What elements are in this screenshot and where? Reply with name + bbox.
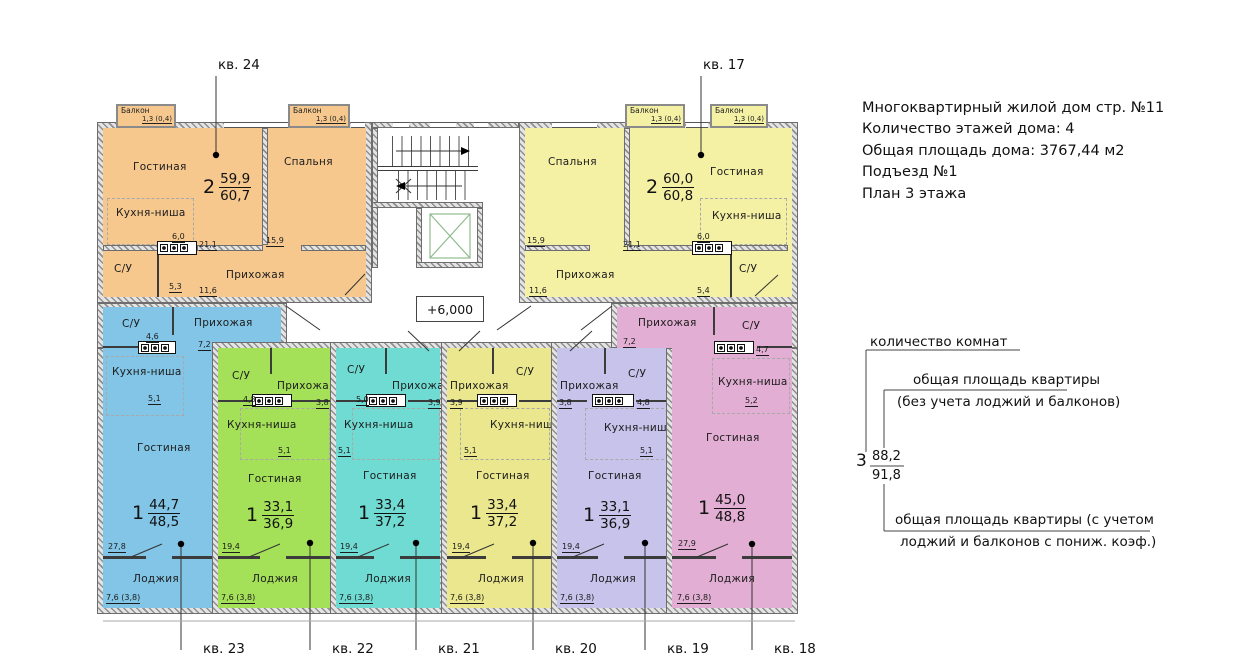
wall [731,245,788,251]
area-number-living: 27,9 [678,539,696,550]
area-number-living: 19,4 [222,542,240,553]
plumbing-fixtures [477,394,517,407]
room-label-kitchen: Кухня-ниша [227,419,297,431]
area-living-total: 60,0 [662,172,694,188]
rooms-count: 1 [246,506,258,525]
room-label-bath: С/У [516,366,534,378]
balcony: Балкон 1,3 (0,4) [288,104,350,128]
legend-rooms-count-label: количество комнат [870,334,1007,350]
kitchen-niche-outline [585,408,669,460]
rooms-count: 2 [203,178,215,197]
room-label-bedroom: Спальня [548,156,597,168]
apartment-kv24-area-fraction: 2 59,960,7 [203,172,251,203]
wall-bath-partition [604,348,606,374]
elevator-shaft-cross [430,214,470,258]
room-label-hall: Прихожая [277,380,336,392]
legend-area-incl-label: общая площадь квартиры (с учетом [895,512,1154,528]
area-with-loggia: 36,9 [262,516,294,531]
apartment-kv19-area-fraction: 1 33,136,9 [583,500,631,531]
rooms-count: 1 [583,506,595,525]
loggia-label: Лоджия [590,573,636,585]
area-number-bath: 5,3 [169,282,182,293]
wall-bath-partition [157,251,159,297]
legend-area-excl-label2: (без учета лоджий и балконов) [897,394,1120,410]
area-living-total: 45,0 [714,493,746,509]
window [474,122,488,128]
title-floors: Количество этажей дома: 4 [862,121,1075,137]
loggia-label: Лоджия [252,573,298,585]
title-total-area: Общая площадь дома: 3767,44 м2 [862,143,1125,159]
window [351,122,365,128]
area-number-kitchen: 5,1 [338,446,351,457]
area-living-total: 33,4 [374,498,406,514]
area-number-kitchen: 5,1 [148,394,161,405]
area-number-hall: 11,6 [199,286,217,297]
loggia-area: 7,6 (3,8) [450,593,484,604]
area-with-loggia: 37,2 [486,514,518,529]
area-number-bath: 4,7 [756,345,769,356]
area-number-bath: 5,4 [697,286,710,297]
room-label-hall: Прихожая [556,269,615,281]
plumbing-fixtures [714,341,754,354]
area-number-bath: 4,8 [243,395,256,406]
area-number-bath: 4,8 [637,398,650,409]
wall [103,245,159,251]
loggia-door-gap [598,556,624,559]
area-number-kitchen: 5,2 [745,396,758,407]
room-label-bath: С/У [232,370,250,382]
balcony: Балкон 1,3 (0,4) [625,104,685,128]
area-number-living: 21,1 [623,240,641,251]
window [393,122,409,128]
room-label-living: Гостиная [363,470,417,482]
apartment-kv21-area-fraction: 1 33,437,2 [358,498,406,529]
balcony-label: Балкон [293,106,322,115]
area-with-loggia: 36,9 [599,516,631,531]
legend-example-area: 88,2 [872,449,901,464]
loggia-label: Лоджия [133,573,179,585]
plumbing-fixtures [138,341,176,354]
floor-plan-page: { "title_block": { "line1": "Многокварти… [0,0,1241,650]
legend-example-rooms: 3 [856,451,867,471]
stair-flight-down [398,171,470,200]
area-number-kitchen: 5,1 [464,446,477,457]
loggia-label: Лоджия [709,573,755,585]
callout-kv21: кв. 21 [438,641,480,657]
floor-plan: Гостиная Спальня Кухня-ниша С/У Прихожая… [0,0,1241,650]
area-number-hall: 7,2 [198,340,211,351]
callout-kv20: кв. 20 [555,641,597,657]
wall-bath-partition [172,307,174,335]
area-number-living: 19,4 [340,542,358,553]
loggia-area: 7,6 (3,8) [106,593,140,604]
area-number-bath: 4,6 [146,332,159,343]
room-label-kitchen: Кухня-ниша [712,210,782,222]
room-label-kitchen: Кухня-ниша [604,422,674,434]
kitchen-niche-outline [352,408,440,460]
room-label-hall: Прихожая [226,269,285,281]
elevation-mark: +6,000 [416,296,484,322]
wall-elevator-right [477,208,483,268]
balcony-label: Балкон [121,106,150,115]
window [552,122,597,128]
wall-bath-partition [385,348,387,374]
apartment-kv23-area-fraction: 1 44,748,5 [132,498,180,529]
area-number-hall: 3,8 [316,398,329,409]
door-swing [497,306,531,330]
balcony: Балкон 1,3 (0,4) [710,104,768,128]
balcony-label: Балкон [630,106,659,115]
room-label-hall: Прихожая [194,317,253,329]
balcony-area: 1,3 (0,4) [734,115,764,124]
area-number-hall: 3,9 [428,398,441,409]
wall-bedroom-partition [262,128,268,245]
room-label-kitchen: Кухня-ниша [116,207,186,219]
area-with-loggia: 60,7 [219,188,251,203]
room-label-living: Гостиная [588,470,642,482]
room-label-bath: С/У [628,368,646,380]
balcony-area: 1,3 (0,4) [651,115,681,124]
loggia-door-gap [374,556,400,559]
area-with-loggia: 48,5 [148,514,180,529]
loggia-door-gap [146,556,172,559]
kitchen-niche-outline [106,356,184,416]
wall-bath-partition [730,251,732,297]
apartment-kv20-area-fraction: 1 33,437,2 [470,498,518,529]
wall [103,346,138,348]
room-label-bath: С/У [347,364,365,376]
area-with-loggia: 37,2 [374,514,406,529]
balcony-area: 1,3 (0,4) [316,115,346,124]
loggia-area: 7,6 (3,8) [677,593,711,604]
room-label-living: Гостиная [137,442,191,454]
rooms-count: 1 [470,504,482,523]
door-swing [286,306,320,330]
door-swing [581,306,612,330]
plumbing-fixtures [692,241,732,255]
room-label-bedroom: Спальня [284,156,333,168]
area-number-hall: 3,8 [559,398,572,409]
area-number-hall: 11,6 [529,286,547,297]
room-label-hall: Прихожая [638,317,697,329]
apartment-kv18-area-fraction: 1 45,048,8 [698,493,746,524]
balcony: Балкон 1,3 (0,4) [116,104,176,128]
wall-elevator-left [416,208,422,268]
wall [519,400,551,402]
room-label-hall: Прихожая [450,380,509,392]
room-label-kitchen: Кухня-ниша [718,376,788,388]
wall-elevator-top [372,202,483,208]
loggia-area: 7,6 (3,8) [560,593,594,604]
callout-kv22: кв. 22 [332,641,374,657]
area-number-bedroom: 15,9 [266,236,284,247]
area-number-kitchen: 6,0 [172,232,185,243]
loggia-label: Лоджия [478,573,524,585]
title-floor-plan: План 3 этажа [862,186,966,202]
wall-bath-partition [270,348,272,374]
area-living-total: 44,7 [148,498,180,514]
room-label-kitchen: Кухня-ниша [490,419,560,431]
legend-example-area-total: 91,8 [872,468,901,483]
loggia-door-gap [260,556,286,559]
title-entrance: Подъезд №1 [862,164,958,180]
wall-bedroom-partition [624,128,630,245]
area-number-living: 19,4 [562,542,580,553]
loggia-area: 7,6 (3,8) [339,593,373,604]
callout-kv17: кв. 17 [703,57,745,73]
area-number-hall: 7,2 [623,337,636,348]
plumbing-fixtures [252,394,292,407]
area-number-kitchen: 5,1 [640,446,653,457]
wall-bath-partition [492,348,494,374]
apartment-kv22-area-fraction: 1 33,136,9 [246,500,294,531]
callout-kv18: кв. 18 [774,641,816,657]
room-label-living: Гостиная [706,432,760,444]
room-label-living: Гостиная [710,166,764,178]
area-number-kitchen: 6,0 [697,232,710,243]
balcony-area: 1,3 (0,4) [142,115,172,124]
balcony-label: Балкон [715,106,744,115]
area-living-total: 33,1 [599,500,631,516]
area-living-total: 33,1 [262,500,294,516]
room-label-kitchen: Кухня-ниша [344,419,414,431]
room-label-kitchen: Кухня-ниша [112,366,182,378]
window [686,122,708,128]
area-number-living: 19,4 [452,542,470,553]
loggia-door-gap [716,556,742,559]
plumbing-fixtures [157,241,197,255]
room-label-bath: С/У [114,263,132,275]
window [430,122,456,128]
wall-stair-left [372,128,378,268]
room-label-bath: С/У [739,263,757,275]
room-label-living: Гостиная [133,161,187,173]
room-label-living: Гостиная [248,473,302,485]
area-number-bedroom: 15,9 [527,236,545,247]
plumbing-fixtures [366,394,406,407]
wall-bath-partition [713,307,715,335]
rooms-count: 1 [698,499,710,518]
room-label-living: Гостиная [476,470,530,482]
room-label-bath: С/У [122,318,140,330]
area-number-bath: 5,0 [356,395,369,406]
stair-flight-up [392,136,470,166]
legend-area-incl-label2: лоджий и балконов с пониж. коэф.) [900,534,1156,550]
area-number-living: 21,1 [199,240,217,251]
wall [301,245,366,251]
callout-kv19: кв. 19 [667,641,709,657]
elevation-value: +6,000 [427,302,473,317]
area-living-total: 33,4 [486,498,518,514]
area-living-total: 59,9 [219,172,251,188]
room-label-bath: С/У [742,320,760,332]
legend-area-excl-label: общая площадь квартиры [913,372,1100,388]
title-building: Многоквартирный жилой дом стр. №11 [862,100,1164,116]
window [224,122,288,128]
wall-elevator-bottom [416,262,483,268]
loggia-door-gap [486,556,512,559]
area-number-kitchen: 5,1 [278,446,291,457]
rooms-count: 1 [358,504,370,523]
plumbing-fixtures [592,394,634,407]
callout-kv23: кв. 23 [203,641,245,657]
apartment-kv17-area-fraction: 2 60,060,8 [646,172,694,203]
area-with-loggia: 48,8 [714,509,746,524]
rooms-count: 1 [132,504,144,523]
area-with-loggia: 60,8 [662,188,694,203]
callout-kv24: кв. 24 [218,57,260,73]
loggia-label: Лоджия [365,573,411,585]
area-number-hall: 3,9 [450,398,463,409]
room-label-hall: Прихожая [560,380,619,392]
area-number-living: 27,8 [108,542,126,553]
stair-landing-line [378,166,478,167]
loggia-area: 7,6 (3,8) [221,593,255,604]
rooms-count: 2 [646,178,658,197]
